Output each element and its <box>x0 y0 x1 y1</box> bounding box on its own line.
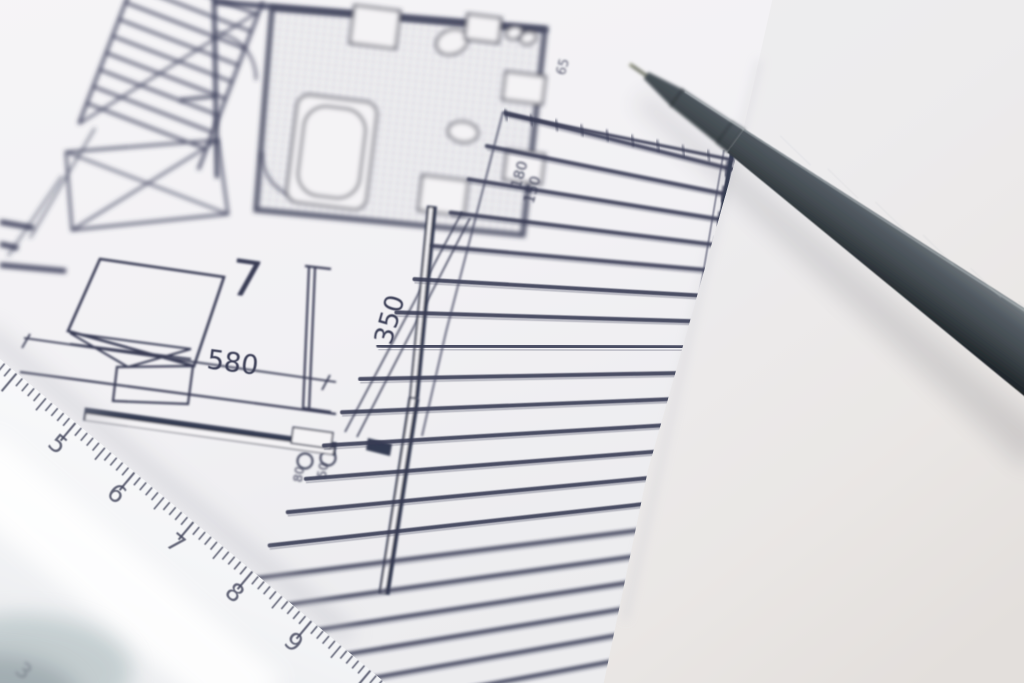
light-sheen <box>0 0 1024 683</box>
photo-floor-plan-scene: 7 580 350 180 150 80 50 65 56789 3 <box>0 0 1024 683</box>
scene-canvas: 7 580 350 180 150 80 50 65 56789 3 <box>0 0 1024 683</box>
